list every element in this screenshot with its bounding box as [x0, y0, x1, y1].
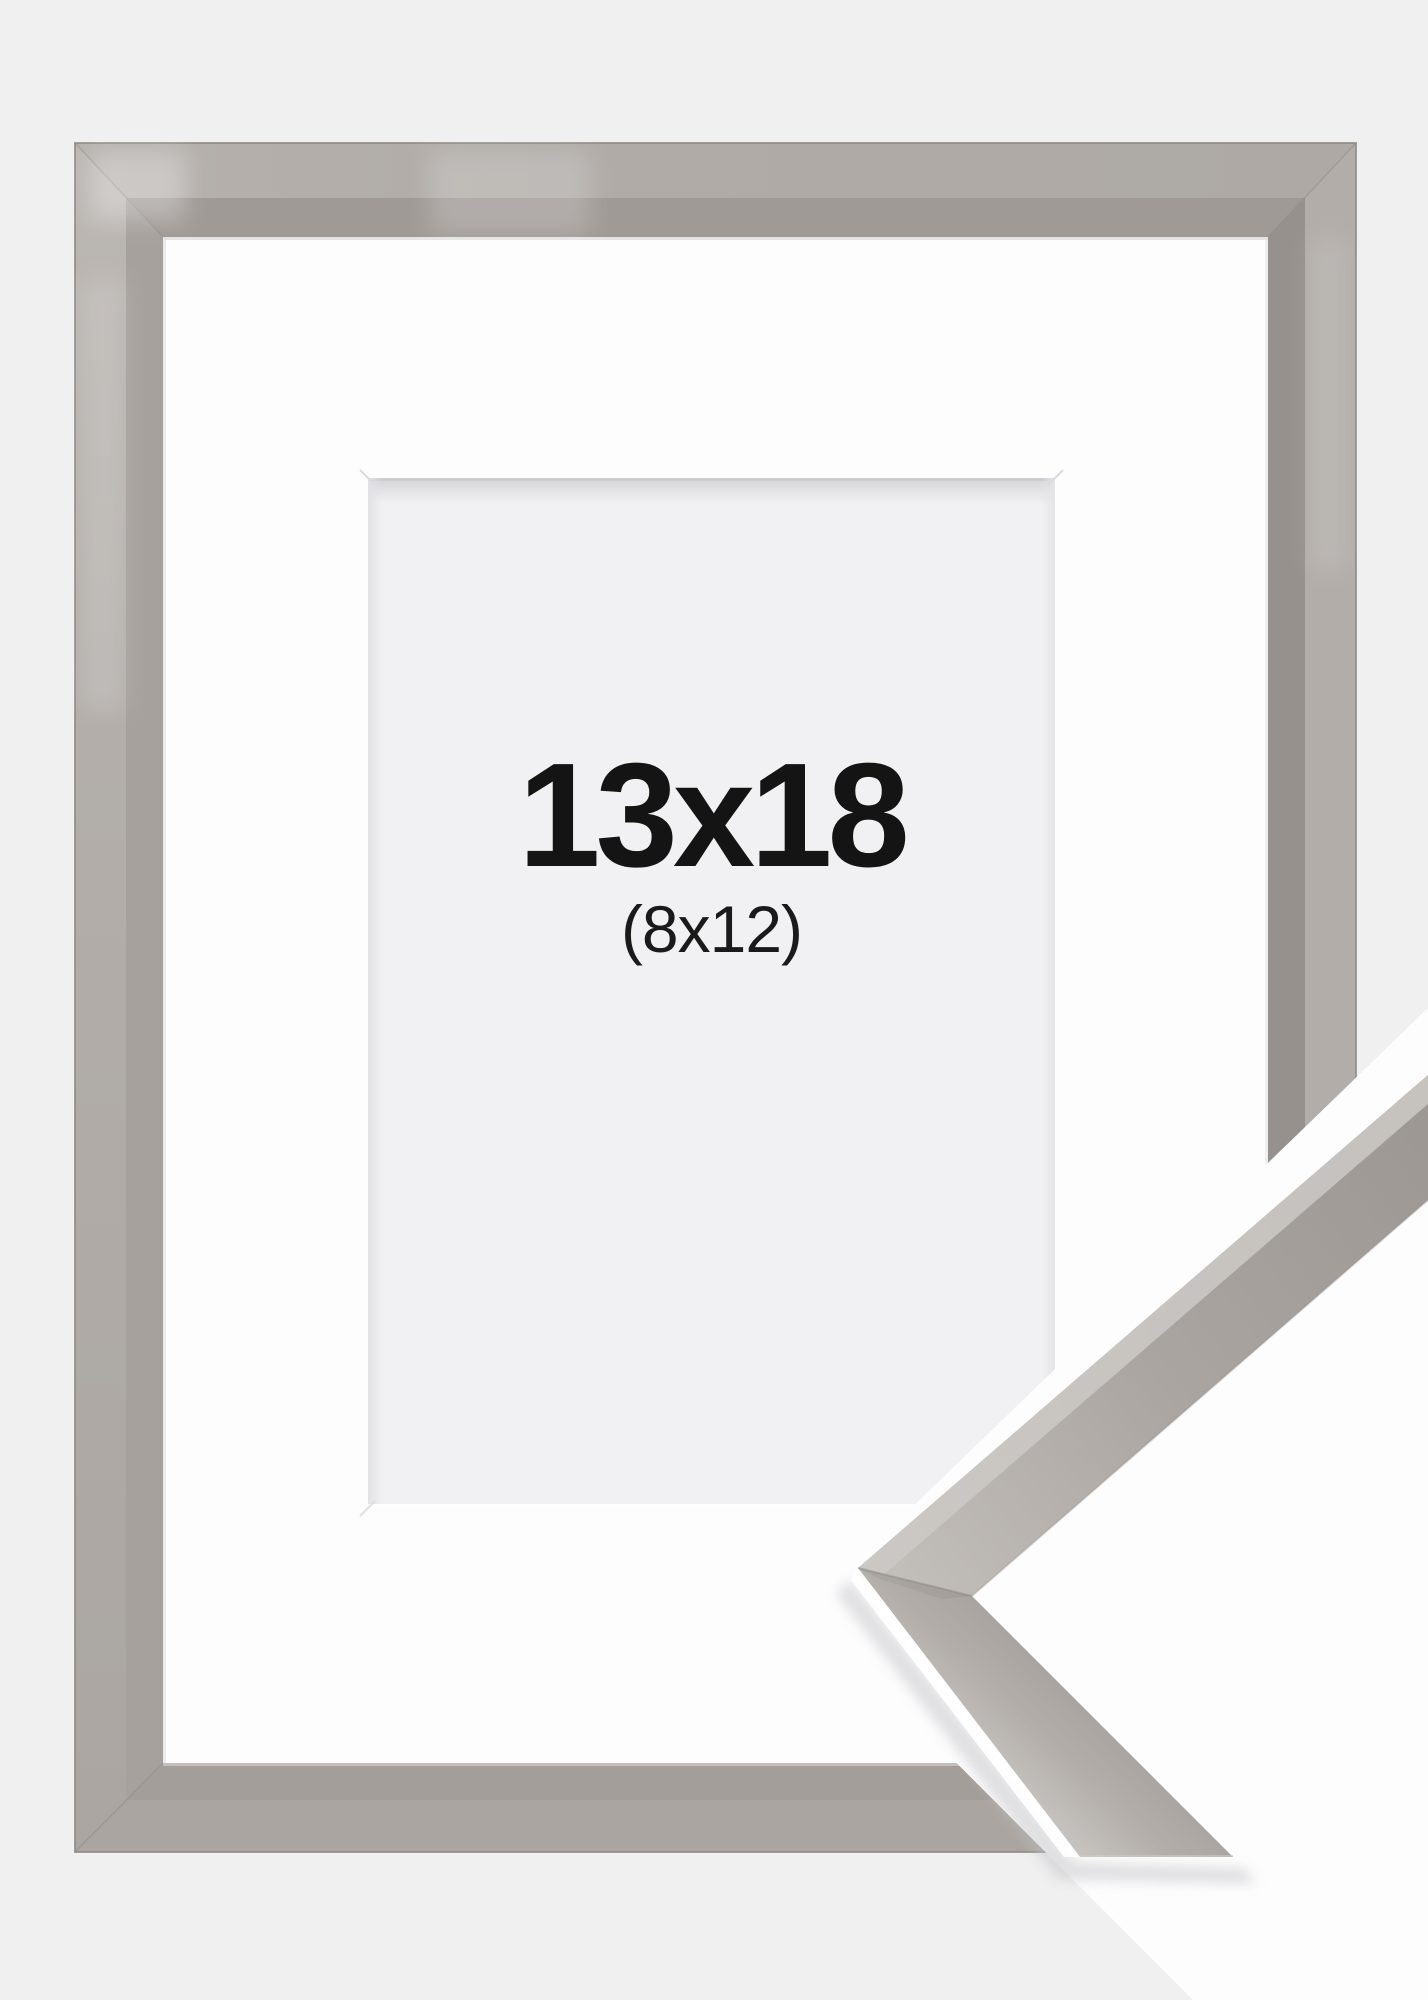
opening-left-inner-shadow: [368, 478, 381, 1508]
sheen-top-rail: [430, 150, 590, 235]
frame-left-rail-bevel: [126, 198, 163, 1800]
mat-opening: [368, 478, 1055, 1508]
sheen-right-rail: [1310, 240, 1348, 570]
sheen-top-left-corner: [90, 150, 185, 220]
frame-product-image: 13x18 (8x12): [0, 0, 1428, 2000]
frame-illustration: [0, 0, 1428, 2000]
opening-top-edge: [368, 478, 1055, 481]
opening-top-inner-shadow: [368, 481, 1055, 505]
mat-left-shadow: [163, 240, 166, 1763]
opening-right-inner-shadow: [1042, 478, 1055, 1508]
mat-top-shadow: [163, 237, 1268, 240]
size-label: 13x18: [368, 742, 1055, 890]
sheen-left-rail: [82, 280, 124, 710]
frame-top-rail-bevel: [126, 198, 1305, 237]
frame-top-rail-face: [75, 143, 1356, 198]
inner-size-label: (8x12): [368, 896, 1055, 962]
